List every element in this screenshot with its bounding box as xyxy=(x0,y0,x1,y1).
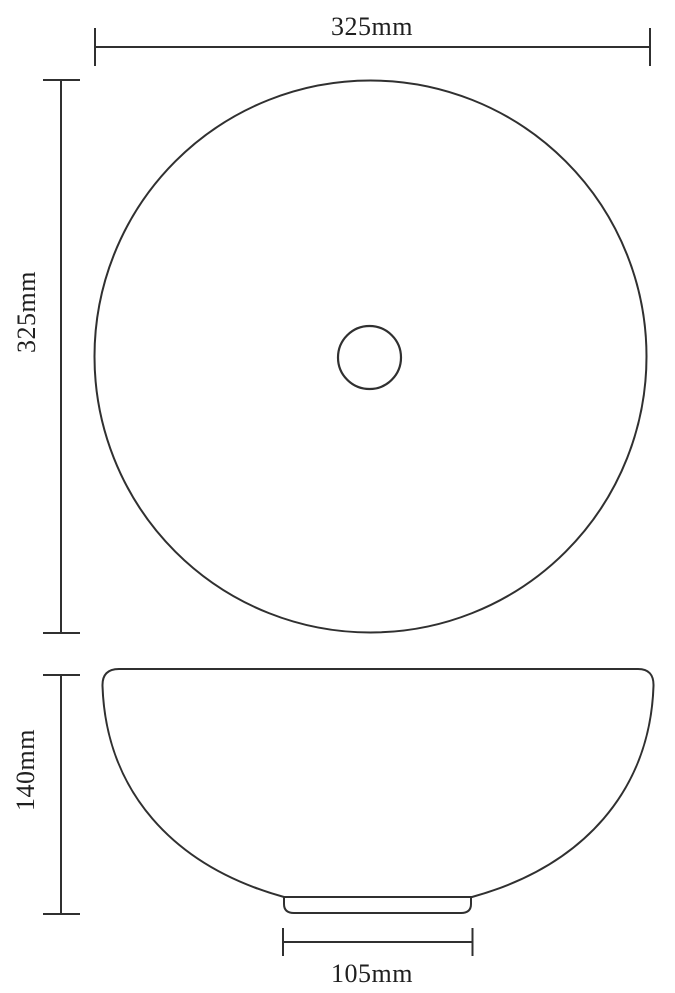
dim-label-depth: 325mm xyxy=(14,271,40,353)
dimension-depth xyxy=(43,80,80,633)
basin-drawing-svg xyxy=(0,0,675,993)
dimension-height xyxy=(43,675,80,914)
drain-hole-circle xyxy=(338,326,401,389)
basin-rim-circle xyxy=(95,81,647,633)
dim-label-height: 140mm xyxy=(13,729,39,811)
dimension-base-width xyxy=(283,928,473,956)
base-foot-outline xyxy=(284,897,471,913)
side-view xyxy=(102,669,653,913)
dim-label-width: 325mm xyxy=(331,14,413,40)
dim-label-base-width: 105mm xyxy=(331,961,413,987)
bowl-profile-outline xyxy=(102,669,653,897)
technical-drawing-canvas: 325mm 325mm 140mm 105mm xyxy=(0,0,675,993)
top-view xyxy=(95,81,647,633)
